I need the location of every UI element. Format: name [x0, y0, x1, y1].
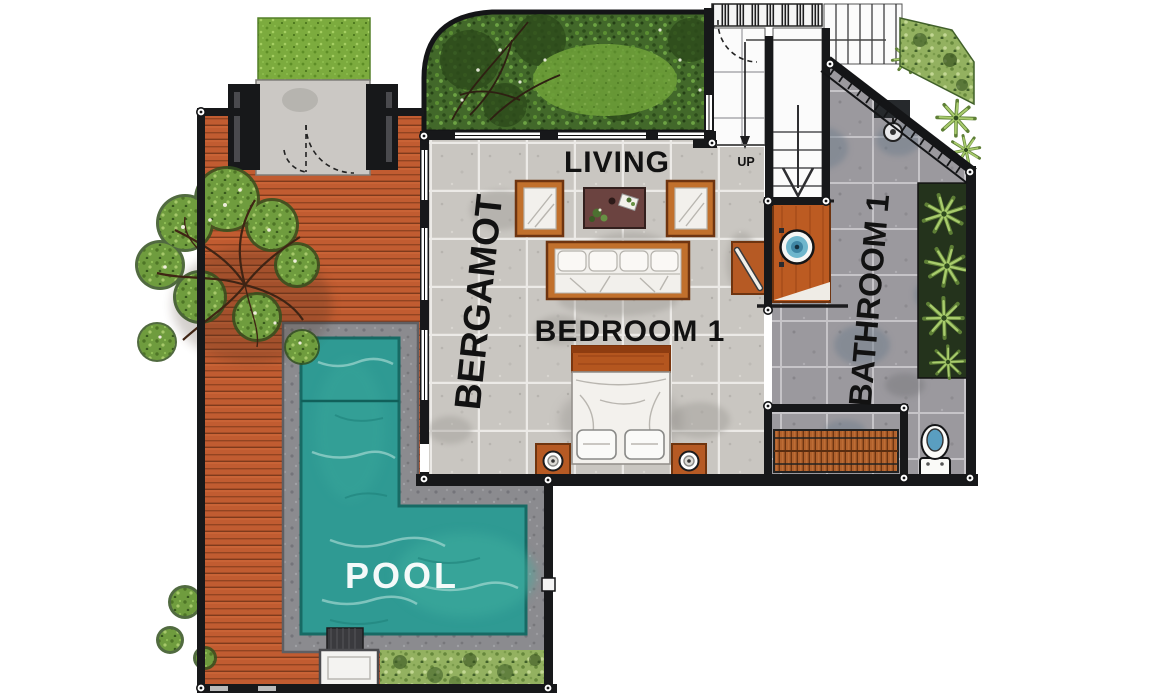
stair-landing	[713, 28, 765, 145]
nightstand-left	[536, 444, 570, 478]
outer-wall-east	[966, 166, 976, 480]
deck-north-wall-right	[366, 108, 424, 116]
gate-post-left	[228, 84, 260, 170]
pool-label: POOL	[345, 555, 459, 596]
stair-east-wall	[822, 28, 830, 205]
bathroom-inner-wall	[764, 404, 908, 412]
north-wall-windows	[455, 133, 704, 139]
gate-post-right	[366, 84, 398, 170]
bottom-hedge	[380, 650, 548, 688]
coffee-table	[584, 188, 645, 228]
bed	[572, 346, 670, 464]
pool-steps-grate	[327, 628, 363, 652]
deck-north-wall-left	[197, 108, 258, 116]
pool-gate-marker	[542, 578, 555, 591]
toilet	[920, 425, 950, 478]
table-bowl	[609, 198, 616, 205]
floor-plan: LIVING BERGAMOT BEDROOM 1 BATHROOM 1 POO…	[0, 0, 1176, 700]
stair-south-wall	[764, 197, 830, 205]
deck-door-opening	[420, 444, 429, 472]
sofa	[547, 242, 689, 299]
toilet-alcove-wall	[900, 404, 908, 480]
stairs-up-label: UP	[737, 155, 754, 169]
entrance-grass	[258, 18, 370, 80]
living-room-label: LIVING	[564, 146, 670, 179]
outer-wall-west	[197, 108, 205, 693]
towel-stool	[732, 242, 766, 294]
entry-mat	[712, 4, 822, 26]
armchair-right	[667, 181, 714, 236]
armchair-left	[516, 181, 563, 236]
nightstand-right	[672, 444, 706, 478]
duckboard-mat	[774, 430, 898, 472]
outer-wall-south	[197, 684, 557, 693]
front-garden	[424, 12, 712, 132]
bathroom-door-south-wall	[764, 404, 772, 480]
floor-plan-svg: LIVING BERGAMOT BEDROOM 1 BATHROOM 1 POO…	[0, 0, 1176, 700]
south-wall	[416, 474, 978, 486]
bathroom-planter	[918, 183, 974, 381]
bedroom-label: BEDROOM 1	[535, 315, 726, 348]
stair-divider-wall	[765, 36, 773, 206]
vanity-west-wall	[764, 197, 772, 312]
